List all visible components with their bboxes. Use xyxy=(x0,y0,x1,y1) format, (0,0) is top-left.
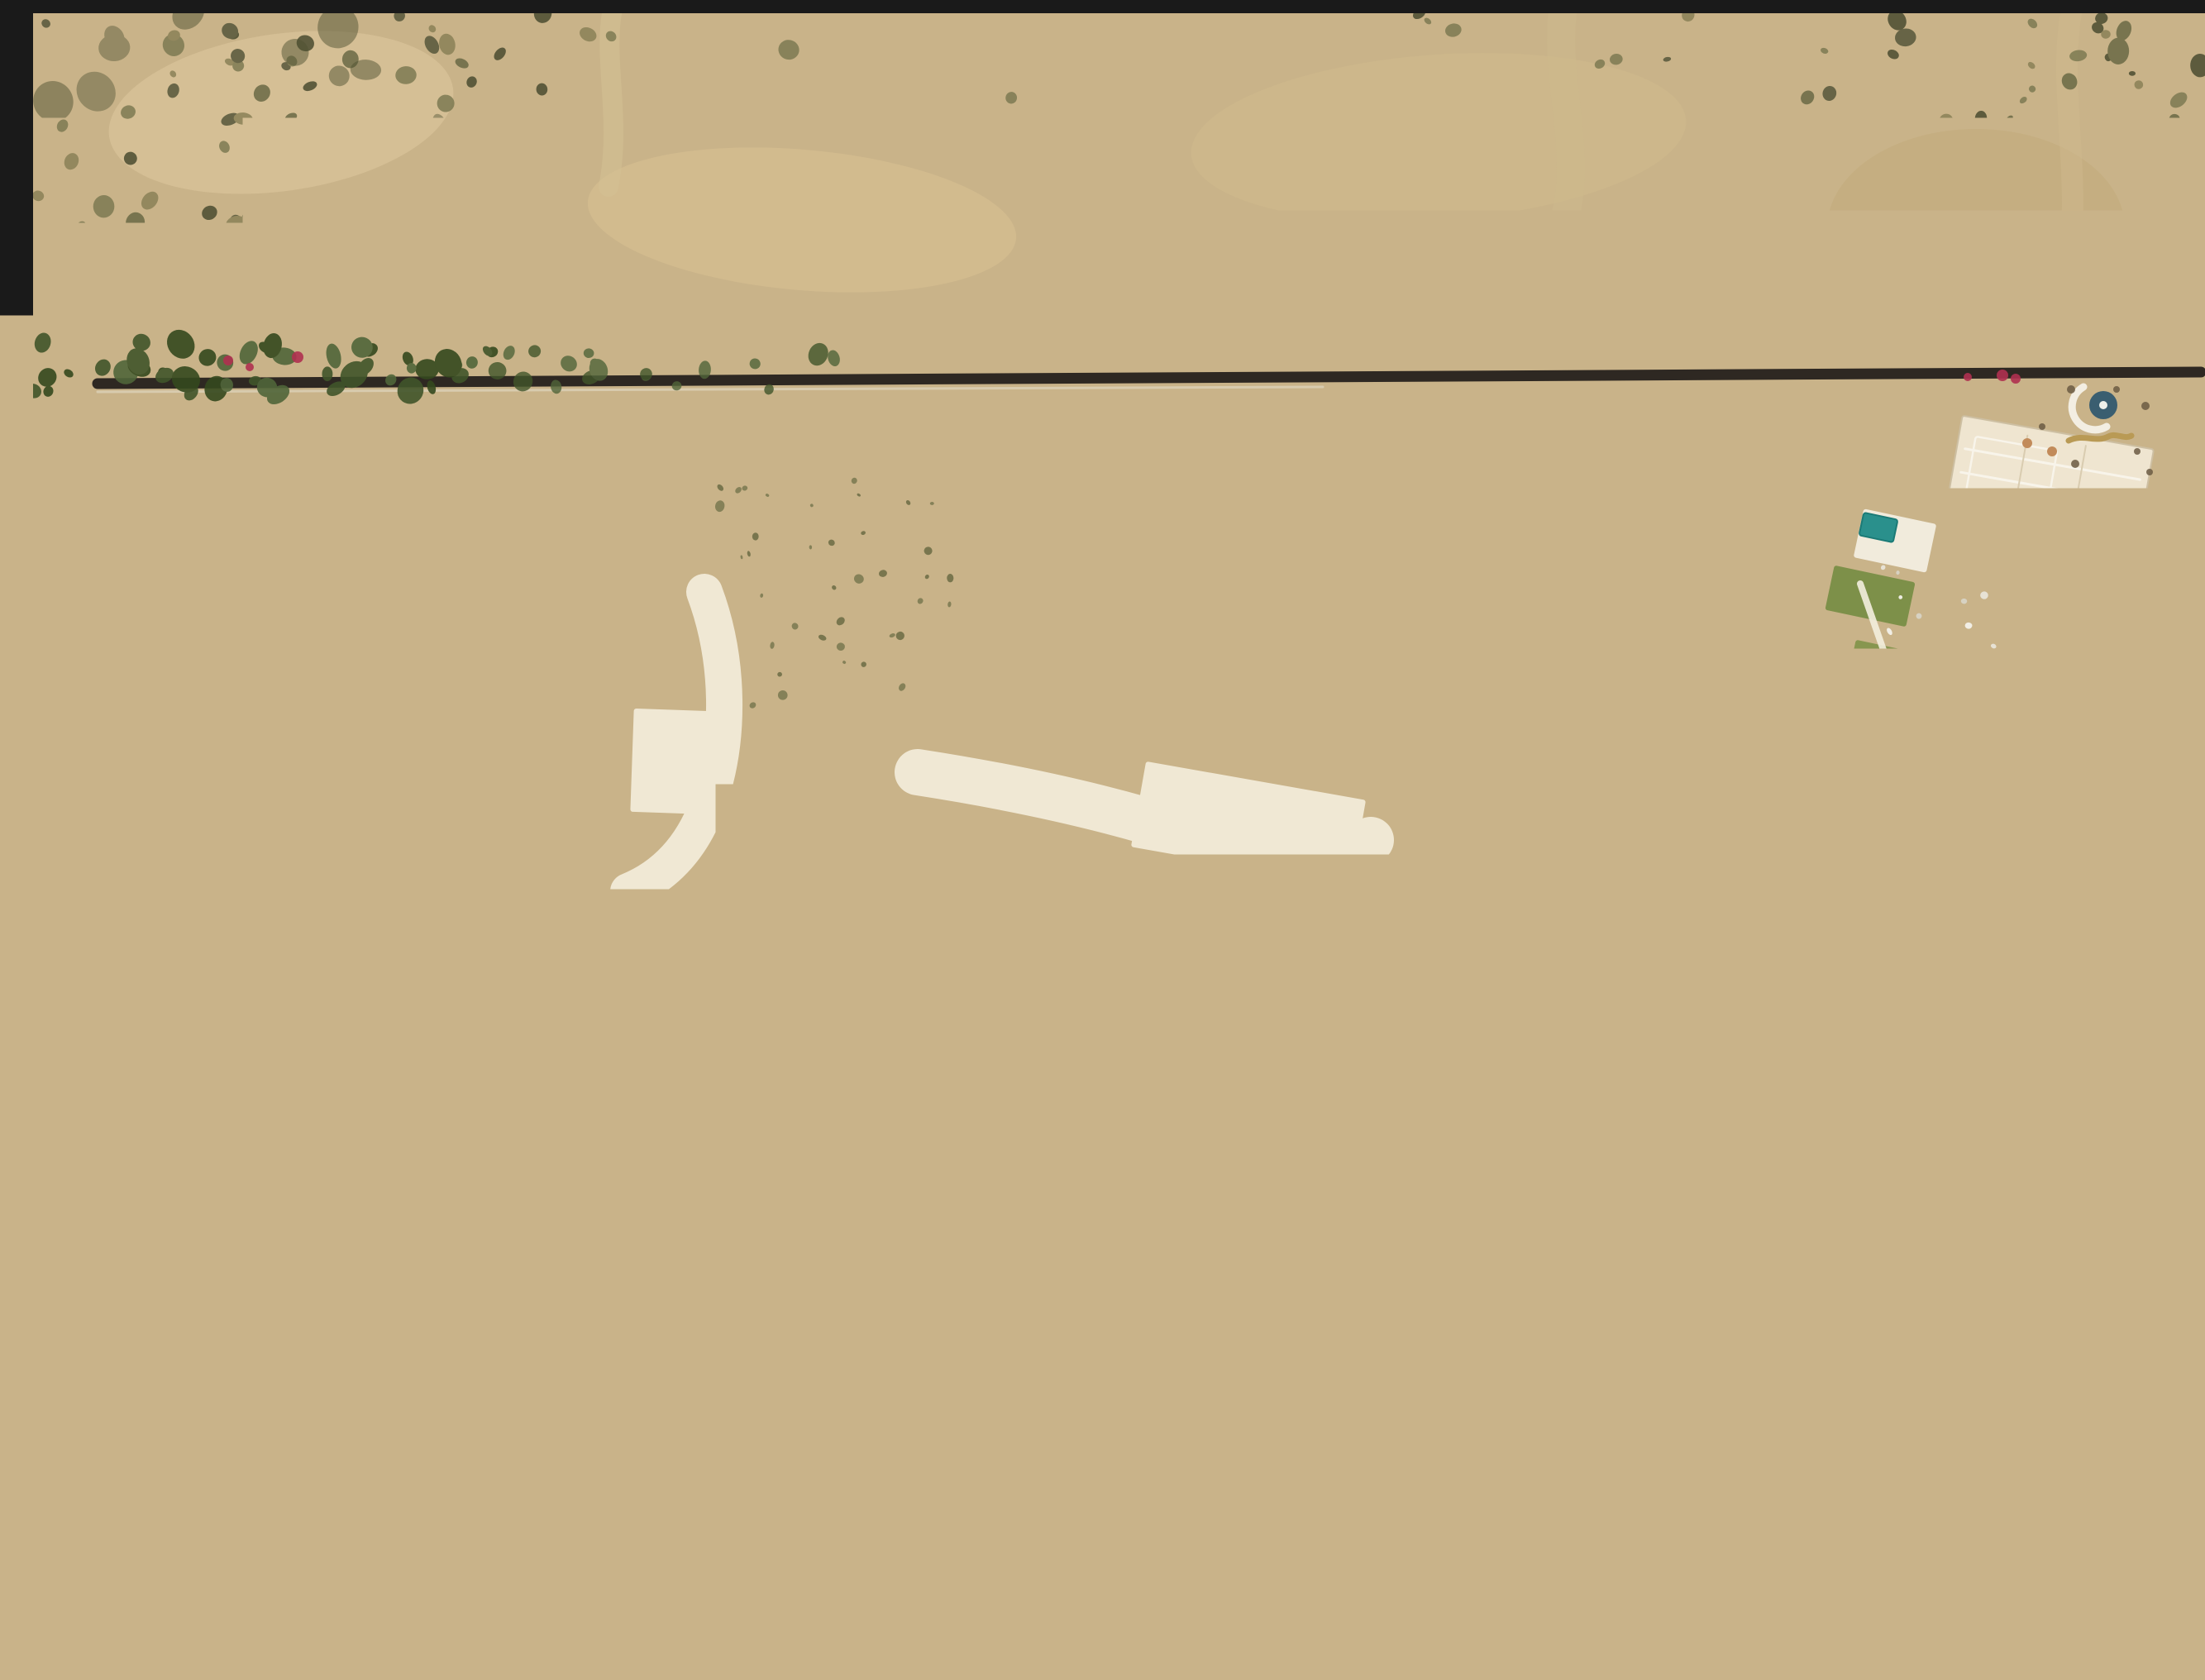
building-edge-dark xyxy=(33,566,88,764)
b6-patio-table xyxy=(1759,1144,1779,1164)
car-red xyxy=(1365,681,1394,697)
casita-lawn-west xyxy=(422,582,456,709)
sundeck-hub-dot xyxy=(948,475,957,483)
car-white-van xyxy=(1372,652,1404,669)
tree-canopy xyxy=(621,514,661,554)
casita-outbuilding xyxy=(532,763,618,830)
lawn-patch xyxy=(1511,763,1557,809)
car-gray xyxy=(1382,750,1410,763)
aerial-photo: Aerial drone photograph, top-down, of a … xyxy=(33,13,2205,1667)
b7-condo-upper xyxy=(1922,416,2154,678)
ornament-spiral-dot xyxy=(2099,401,2107,409)
clubhouse-wing-south xyxy=(1172,736,1344,845)
lawn-patch xyxy=(1634,451,1693,510)
casita-lounger xyxy=(543,710,565,718)
casita-umbrella xyxy=(572,683,589,699)
building-edge-beige xyxy=(33,478,92,560)
aerial-photo-canvas xyxy=(33,13,2205,1667)
clubhouse-entry-canopy xyxy=(1286,480,1339,518)
clubhouse-notch-sand xyxy=(1050,731,1152,813)
casita-lounger xyxy=(516,708,537,716)
drainage-wash xyxy=(1558,13,1571,379)
casita-pergola xyxy=(583,628,661,701)
